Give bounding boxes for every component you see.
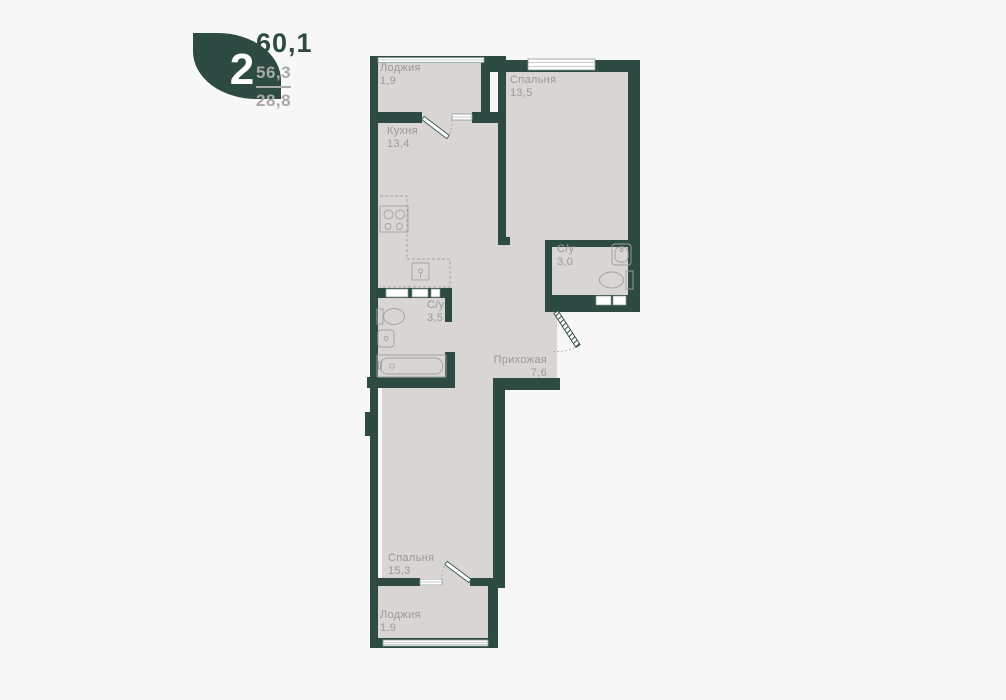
room-area: 7,6 (462, 367, 547, 380)
room-label-kitchen: Кухня 13,4 (387, 125, 418, 150)
room-area: 1,9 (380, 75, 421, 88)
room-label-bathroom-large: С/у 3,5 (427, 299, 444, 324)
floor-plan-svg (0, 0, 1006, 700)
room-label-loggia-top: Лоджия 1,9 (380, 62, 421, 87)
room-name: С/у (427, 299, 444, 311)
room-label-bathroom-small: С/у 3,0 (557, 243, 574, 268)
room-name: Прихожая (494, 354, 547, 366)
room-area: 3,0 (557, 256, 574, 269)
room-name: Лоджия (380, 609, 421, 621)
room-name: Спальня (388, 552, 434, 564)
room-label-bedroom-bottom: Спальня 15,3 (388, 552, 434, 577)
room-name: С/у (557, 243, 574, 255)
room-name: Спальня (510, 74, 556, 86)
room-name: Лоджия (380, 62, 421, 74)
room-label-hallway: Прихожая 7,6 (462, 354, 547, 379)
room-area: 3,5 (427, 312, 444, 325)
room-area: 13,5 (510, 87, 556, 100)
floorplan-page: 2 60,1 56,3 28,8 (0, 0, 1006, 700)
room-label-loggia-bottom: Лоджия 1,9 (380, 609, 421, 634)
room-area: 15,3 (388, 565, 434, 578)
room-area: 1,9 (380, 622, 421, 635)
room-label-bedroom-top: Спальня 13,5 (510, 74, 556, 99)
room-area: 13,4 (387, 138, 418, 151)
room-name: Кухня (387, 125, 418, 137)
